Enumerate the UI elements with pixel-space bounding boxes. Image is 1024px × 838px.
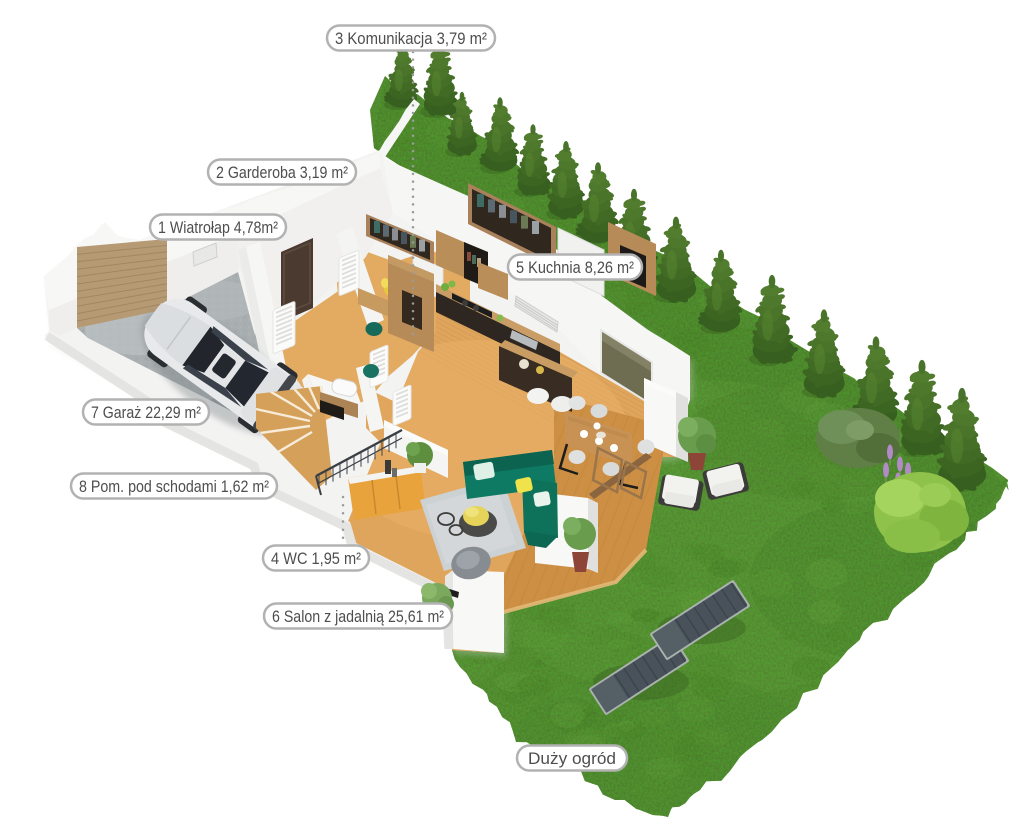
svg-text:6 Salon z jadalnią 25,61 m²: 6 Salon z jadalnią 25,61 m² [272,608,444,626]
svg-text:7 Garaż 22,29 m²: 7 Garaż 22,29 m² [91,404,201,422]
svg-text:8 Pom. pod schodami 1,62 m²: 8 Pom. pod schodami 1,62 m² [79,478,269,496]
svg-text:Duży ogród: Duży ogród [528,750,616,768]
svg-text:3 Komunikacja 3,79 m²: 3 Komunikacja 3,79 m² [335,30,487,48]
svg-text:2 Garderoba 3,19 m²: 2 Garderoba 3,19 m² [216,164,348,182]
svg-text:4 WC 1,95 m²: 4 WC 1,95 m² [271,550,361,568]
svg-text:1 Wiatrołap 4,78m²: 1 Wiatrołap 4,78m² [158,219,278,237]
svg-text:5 Kuchnia 8,26 m²: 5 Kuchnia 8,26 m² [516,259,634,277]
